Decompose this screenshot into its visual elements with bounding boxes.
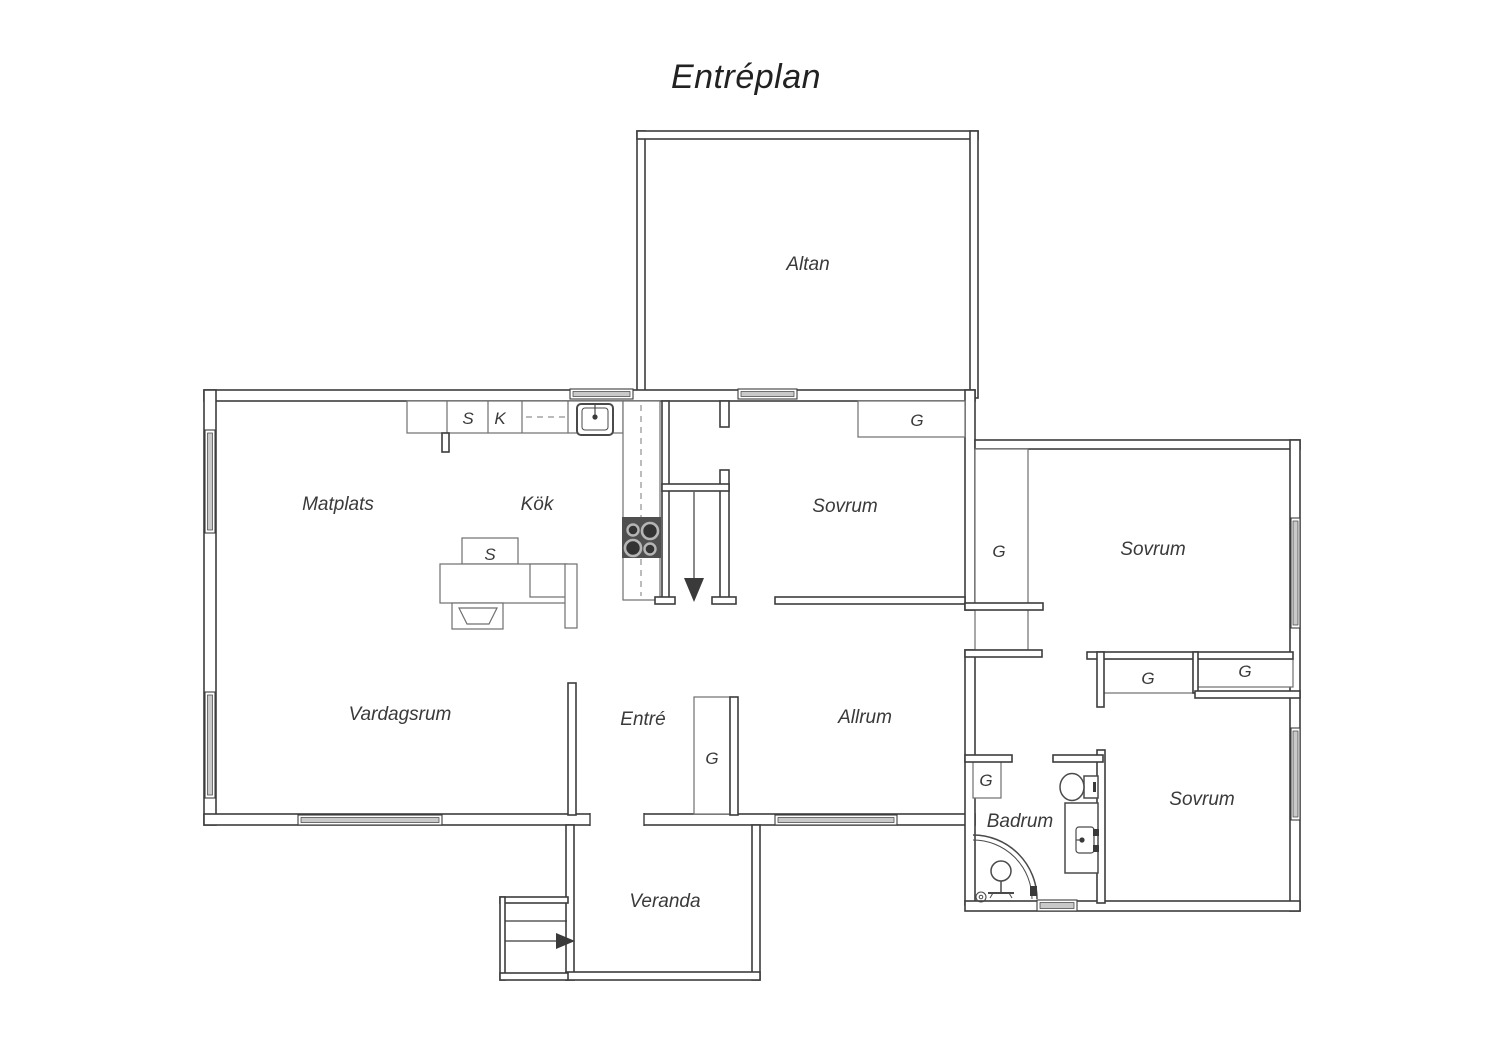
stairwell-foot-left [655, 597, 675, 604]
window [1291, 518, 1300, 628]
wing-wall-top [975, 440, 1300, 449]
veranda-wall-right [752, 825, 760, 980]
closet-label: G [979, 771, 992, 790]
entry-stairs [505, 921, 575, 949]
veranda-wall-bottom [566, 972, 760, 980]
vanity-sink-icon [1065, 803, 1099, 873]
stairs-down [684, 492, 704, 602]
entre-wall-right [730, 697, 738, 815]
closet-label: G [1141, 669, 1154, 688]
bathroom-wall-top-right [1053, 755, 1103, 762]
island-s-label: S [484, 545, 496, 564]
floor-plan-page: Entréplan [0, 0, 1500, 1060]
room-label-entre: Entré [620, 709, 665, 730]
closet-label: G [992, 542, 1005, 561]
stairwell-wall-left [662, 401, 669, 600]
room-label-sovrum-2: Sovrum [1120, 539, 1185, 560]
stove-icon [622, 517, 661, 558]
altan-wall-top [637, 131, 978, 139]
bedroom1-wall-bottom [775, 597, 965, 604]
cabinet-s-label: S [462, 409, 474, 428]
window [738, 389, 797, 399]
wing-wall-bottom [965, 901, 1300, 911]
window [205, 692, 215, 798]
room-label-allrum: Allrum [837, 707, 892, 728]
corridor-wall-top [965, 603, 1043, 610]
room-label-sovrum-3: Sovrum [1169, 789, 1234, 810]
room-label-veranda: Veranda [629, 891, 700, 912]
room-label-vardagsrum: Vardagsrum [349, 704, 452, 725]
floor-plan: Entréplan [0, 0, 1500, 1060]
entry-stairs-wall-top [500, 897, 568, 903]
cabinet-k-label: K [494, 409, 506, 428]
hall-wall-stub [1097, 652, 1104, 707]
entre-wall-left [568, 683, 576, 815]
window [1037, 900, 1077, 911]
shower-icon [973, 835, 1037, 902]
bathroom-wall-top-left [965, 755, 1012, 762]
closet-label: G [1238, 662, 1251, 681]
stairwell-foot-right [712, 597, 736, 604]
closet-divider-wall [1193, 652, 1198, 693]
bedroom2-wall-south [1087, 652, 1293, 659]
room-label-badrum: Badrum [987, 811, 1054, 832]
window [298, 815, 442, 825]
kitchen-island [440, 538, 577, 629]
front-door-opening [590, 812, 644, 827]
closet-label: G [910, 411, 923, 430]
room-label-kok: Kök [521, 494, 555, 515]
chair-icon [452, 603, 503, 629]
kitchen-wall-stub [442, 433, 449, 452]
window [205, 430, 215, 533]
stairwell-wall-top [662, 484, 729, 491]
sink-icon [577, 404, 613, 435]
entry-stairs-wall-bottom [500, 973, 568, 980]
entry-stairs-wall-left [500, 897, 505, 980]
room-label-sovrum-1: Sovrum [812, 496, 877, 517]
main-wall-right-upper [965, 390, 975, 610]
bedroom3-wall-top [1195, 691, 1300, 698]
window [1291, 728, 1300, 820]
altan-wall-right [970, 131, 978, 398]
window [775, 815, 897, 825]
corridor-wall-bottom [965, 650, 1042, 657]
page-title: Entréplan [671, 58, 821, 96]
room-label-matplats: Matplats [302, 494, 374, 515]
closets-and-cabinets [407, 401, 1293, 814]
stairs-down-arrow-icon [684, 578, 704, 602]
altan-wall-left [637, 131, 645, 398]
window [570, 389, 633, 399]
bedroom1-wall-stub [720, 401, 729, 427]
room-label-altan: Altan [785, 254, 829, 275]
toilet-icon [1060, 774, 1098, 801]
closet-label: G [705, 749, 718, 768]
